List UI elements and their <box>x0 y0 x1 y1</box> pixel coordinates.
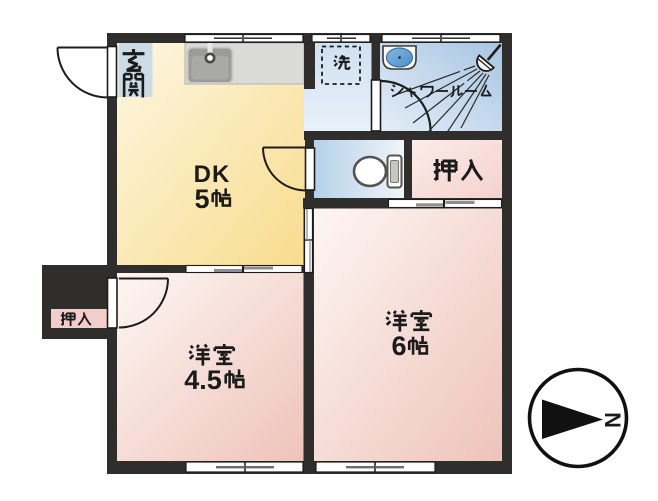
svg-text:5: 5 <box>194 184 209 214</box>
svg-text:6: 6 <box>391 331 406 361</box>
svg-text:4.5: 4.5 <box>184 365 222 395</box>
svg-text:N: N <box>600 412 625 428</box>
